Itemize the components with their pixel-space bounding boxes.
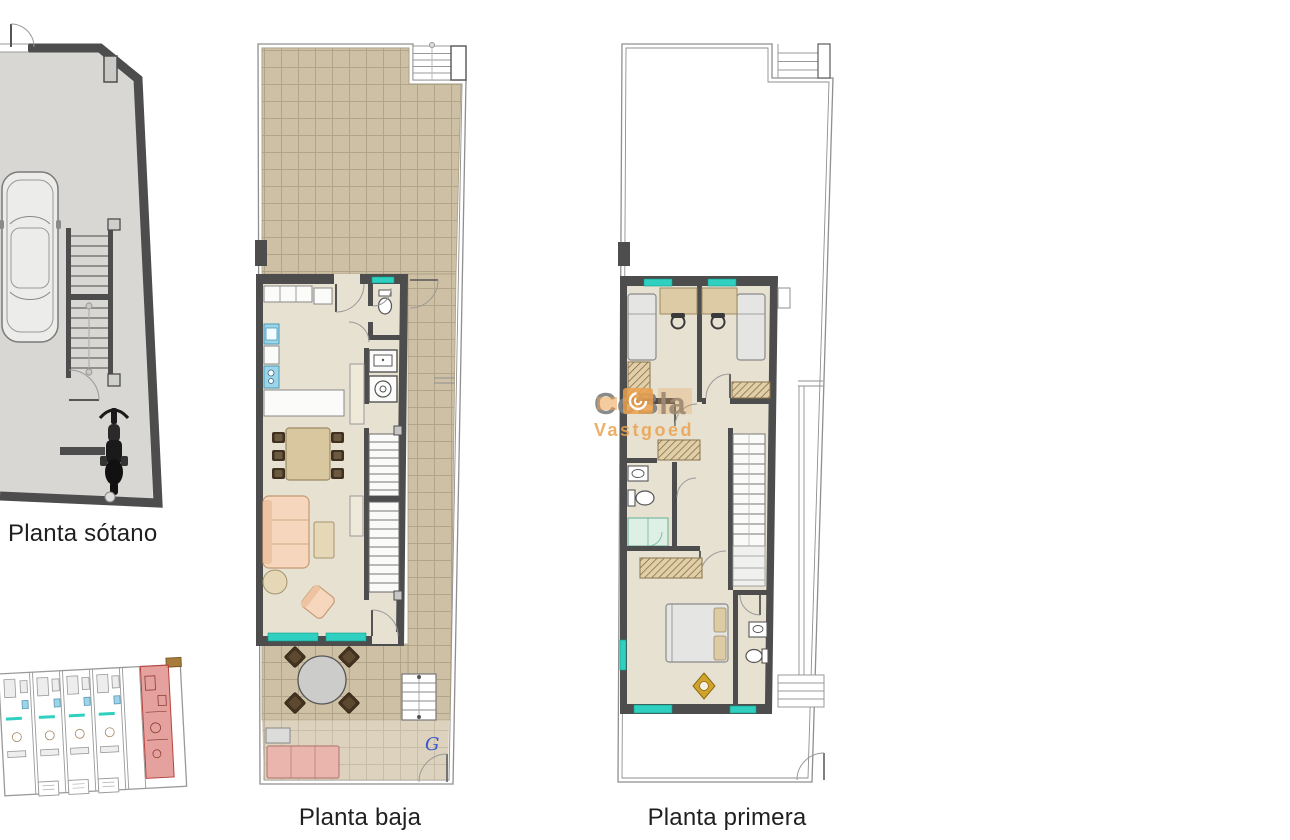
ground-label: Planta baja [250, 804, 470, 832]
side-table [266, 728, 290, 743]
staircase [364, 426, 402, 600]
sofa [263, 496, 309, 568]
garage-letter: G [425, 734, 439, 755]
living-windows [268, 633, 366, 641]
wall-dot [105, 492, 115, 502]
wall-pillar [255, 240, 267, 266]
wc-window [372, 277, 394, 283]
master-window-bottom [634, 705, 672, 713]
ground-floor-plan: G [248, 34, 484, 794]
car-icon [0, 172, 61, 342]
counter [264, 390, 344, 416]
lower-steps [778, 675, 824, 707]
wall-pillar [618, 242, 630, 266]
floorplan-sheet: Planta sótano [0, 0, 1290, 840]
dining-set [272, 428, 344, 480]
pouf [263, 570, 287, 594]
site-plan [0, 653, 200, 818]
master-window-left [620, 640, 626, 670]
wall-stub [60, 447, 105, 455]
basement-plan [0, 0, 195, 540]
tall-cabinet [350, 364, 364, 424]
entry-steps [413, 43, 466, 81]
site-highlighted-unit [140, 665, 174, 778]
coffee-table [314, 522, 334, 558]
basement-label: Planta sótano [8, 520, 157, 548]
ac-unit [778, 288, 790, 308]
wall-pillar [104, 56, 117, 82]
garden-steps [402, 674, 436, 720]
first-floor-plan [612, 30, 842, 800]
roof-steps [778, 44, 830, 78]
side-cabinet [350, 496, 363, 536]
ensuite-window-bottom [730, 706, 756, 713]
cooktop [264, 366, 279, 388]
bedroom1-window [644, 279, 672, 286]
sun-lounger [267, 746, 339, 778]
bedroom2-window [708, 279, 736, 286]
first-label: Planta primera [612, 804, 842, 832]
staircase [728, 428, 765, 590]
